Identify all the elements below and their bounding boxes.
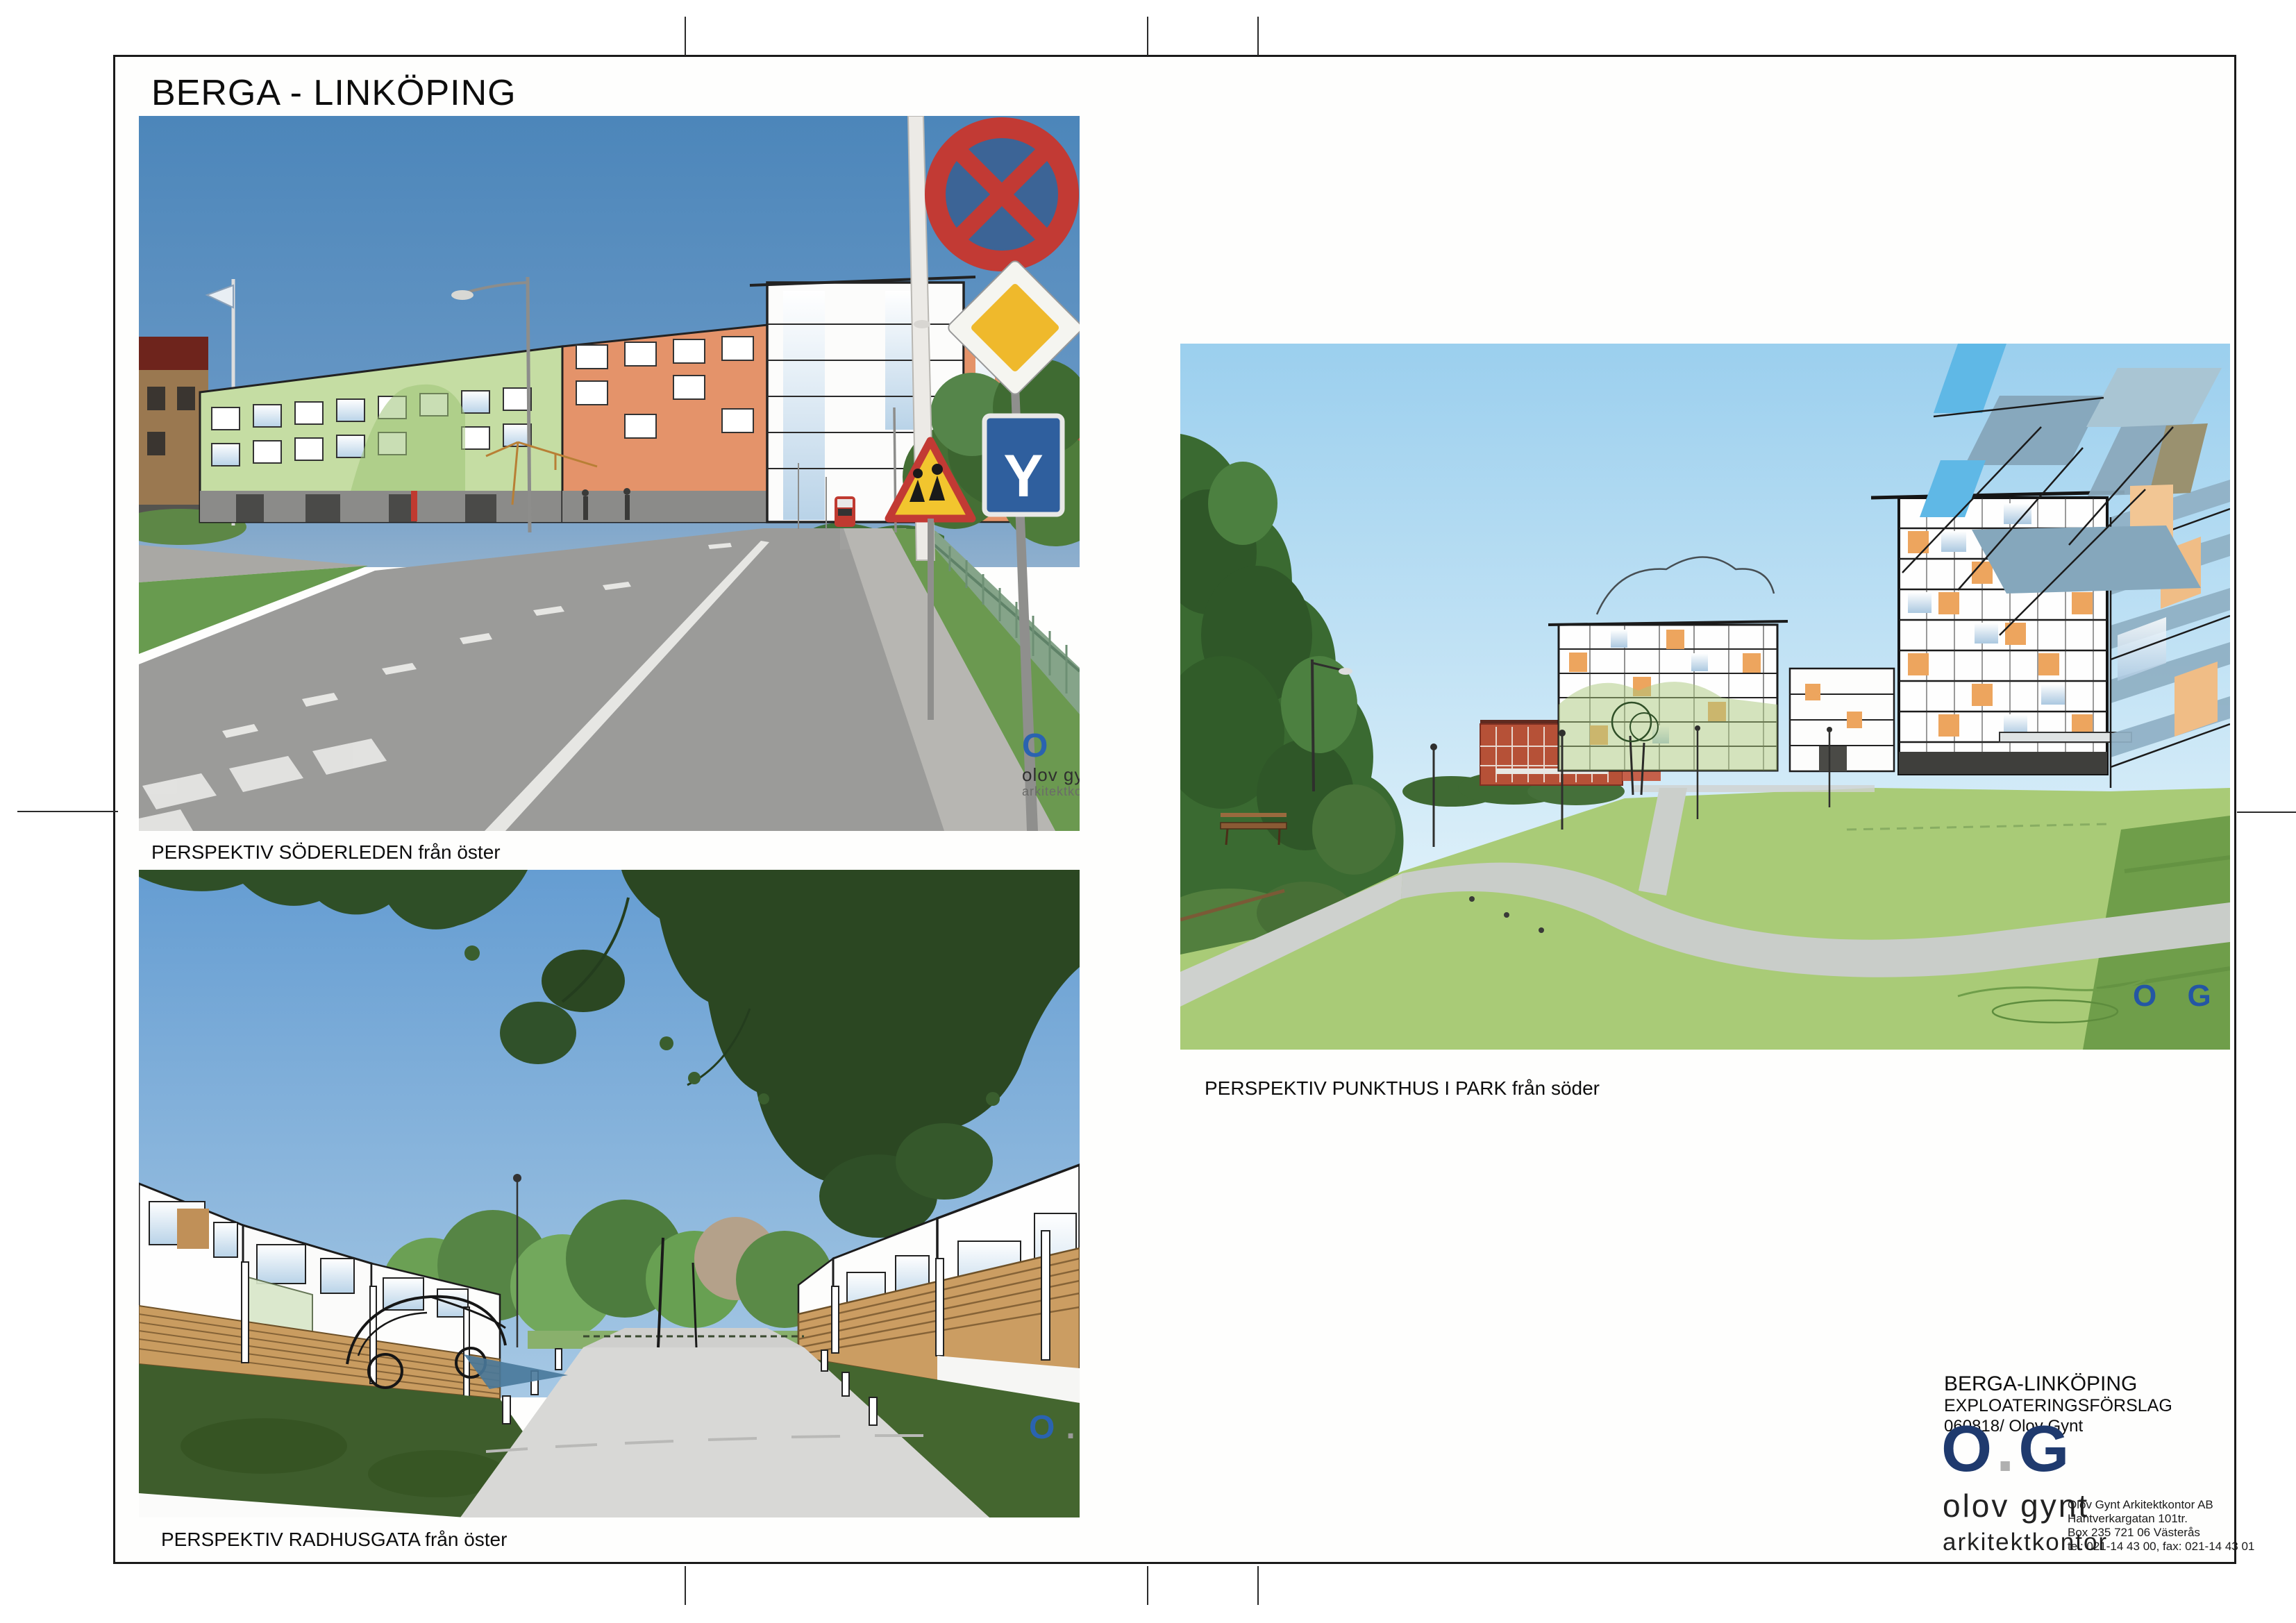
og-watermark-letters: O G bbox=[1022, 728, 1080, 764]
perspective-image-punkthus: O G bbox=[1180, 344, 2230, 1050]
og-logo-dot: . bbox=[1996, 1412, 2018, 1485]
og-watermark-soderleden: O G olov gynt arkitektkontor bbox=[1022, 730, 1080, 798]
page-title: BERGA - LINKÖPING bbox=[151, 72, 517, 114]
firm-address-line: Box 235 721 06 Västerås bbox=[2068, 1526, 2254, 1540]
crop-mark-top-3 bbox=[1257, 17, 1259, 56]
og-watermark-letters: O G bbox=[2133, 979, 2222, 1013]
soderleden-illustration: Y bbox=[139, 116, 1080, 831]
crop-mark-bottom-3 bbox=[1257, 1566, 1259, 1605]
crop-mark-bottom-2 bbox=[1147, 1566, 1148, 1605]
project-title: BERGA-LINKÖPING bbox=[1944, 1372, 2172, 1396]
og-watermark-letters: O.G bbox=[1029, 1409, 1080, 1446]
og-logo-g: G bbox=[2018, 1412, 2073, 1485]
og-logo-o: O bbox=[1941, 1412, 1996, 1485]
og-logo: O.G bbox=[1941, 1416, 2073, 1481]
crop-mark-top-2 bbox=[1147, 17, 1148, 56]
presentation-sheet: BERGA - LINKÖPING bbox=[0, 0, 2296, 1623]
firm-address-line: Hantverkargatan 101tr. bbox=[2068, 1512, 2254, 1526]
caption-soderleden: PERSPEKTIV SÖDERLEDEN från öster bbox=[151, 841, 501, 864]
punkthus-illustration bbox=[1180, 344, 2230, 1050]
crop-mark-top-1 bbox=[685, 17, 686, 56]
radhusgata-illustration bbox=[139, 870, 1080, 1517]
no-stopping-sign bbox=[935, 128, 1069, 261]
perspective-image-radhusgata: O.G bbox=[139, 870, 1080, 1517]
caption-radhusgata: PERSPEKTIV RADHUSGATA från öster bbox=[161, 1529, 507, 1551]
y-sign-glyph: Y bbox=[1003, 443, 1043, 510]
firm-address-block: Olov Gynt Arkitektkontor AB Hantverkarga… bbox=[2068, 1498, 2254, 1554]
og-watermark-punkthus: O G bbox=[2133, 981, 2222, 1011]
y-road-sign: Y bbox=[984, 416, 1062, 514]
crop-mark-bottom-1 bbox=[685, 1566, 686, 1605]
perspective-image-soderleden: Y O G olov gynt arkitektkontor bbox=[139, 116, 1080, 831]
crop-mark-left bbox=[17, 811, 118, 812]
firm-address-line: Olov Gynt Arkitektkontor AB bbox=[2068, 1498, 2254, 1512]
og-watermark-radhusgata: O.G bbox=[1029, 1411, 1080, 1445]
caption-punkthus: PERSPEKTIV PUNKTHUS I PARK från söder bbox=[1205, 1077, 1600, 1100]
firm-address-line: tel: 021-14 43 00, fax: 021-14 43 01 bbox=[2068, 1540, 2254, 1554]
crop-mark-right bbox=[2237, 811, 2296, 813]
